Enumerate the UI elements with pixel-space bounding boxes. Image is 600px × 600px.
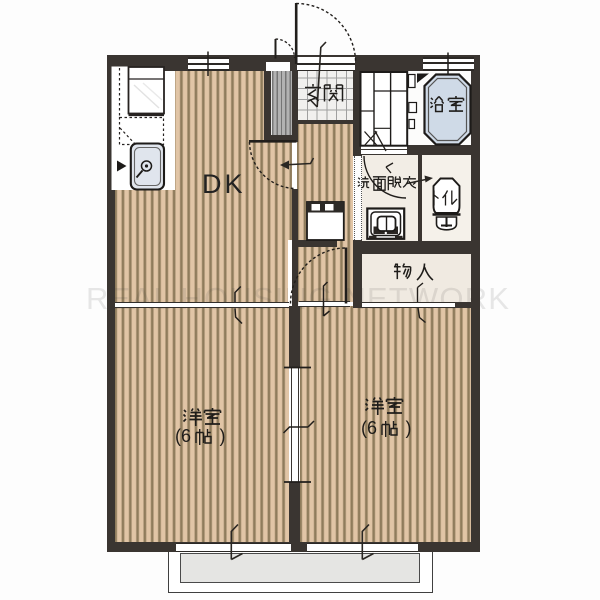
- svg-text:): ): [220, 426, 226, 446]
- svg-text:(6: (6: [361, 418, 377, 438]
- svg-text:(6: (6: [175, 426, 191, 446]
- svg-text:DK: DK: [202, 169, 246, 199]
- svg-text:): ): [406, 418, 412, 438]
